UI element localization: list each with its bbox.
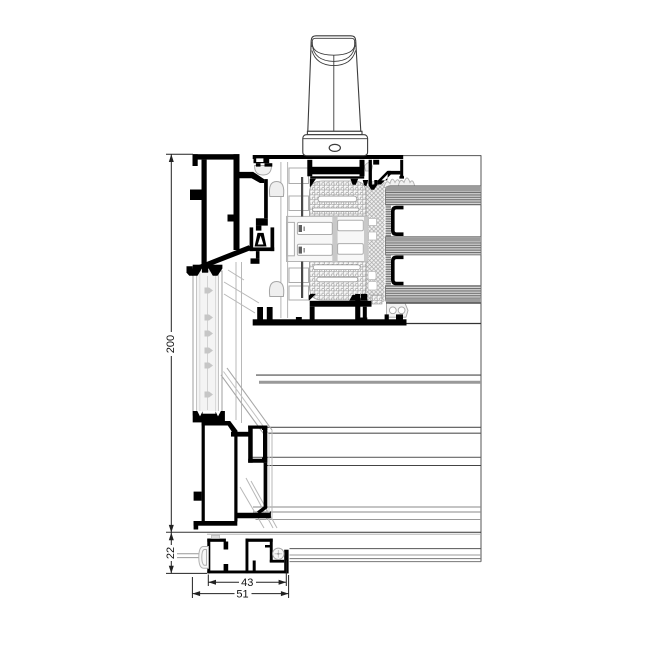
svg-text:22: 22 <box>165 547 177 559</box>
svg-text:200: 200 <box>165 335 177 353</box>
svg-text:43: 43 <box>241 577 253 589</box>
svg-text:51: 51 <box>236 588 248 600</box>
